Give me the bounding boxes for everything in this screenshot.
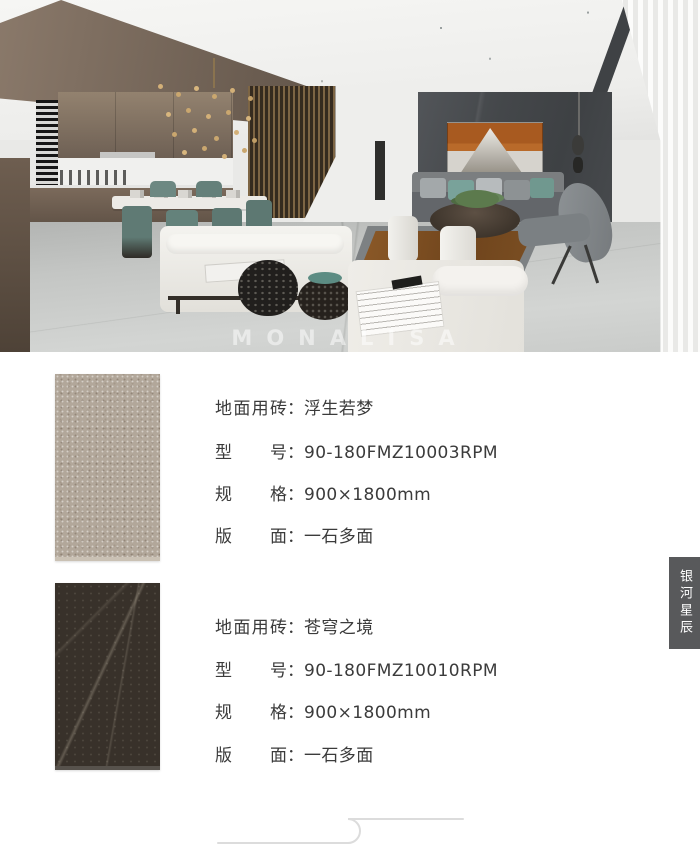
kitchen-upper-cabinets <box>58 92 233 158</box>
spec-colon: ： <box>287 698 304 723</box>
tableware <box>130 190 240 198</box>
spec-value: 浮生若梦 <box>304 399 374 419</box>
door <box>375 141 385 200</box>
textured-pot <box>298 278 352 320</box>
spec-label: 规格 <box>215 480 287 505</box>
tile-swatch-beige <box>55 374 160 561</box>
catalog-page: MONALISA 地面用砖：浮生若梦 型号：90-180FMZ10003RPM … <box>0 0 700 854</box>
spec-label: 地面用砖 <box>215 613 287 638</box>
spec-value: 90-180FMZ10010RPM <box>304 661 498 681</box>
spec-colon: ： <box>287 394 304 419</box>
spec-colon: ： <box>287 438 304 463</box>
spec-label: 型号 <box>215 656 287 681</box>
teal-bowl <box>308 272 342 284</box>
brand-watermark: MONALISA <box>0 326 700 350</box>
bench-leg <box>176 300 180 314</box>
sofa-pillow <box>420 178 446 198</box>
spec-colon: ： <box>287 741 304 766</box>
spec-label: 型号 <box>215 438 287 463</box>
room-photo: MONALISA <box>0 0 700 352</box>
chandelier-rod <box>213 58 215 88</box>
spec-value: 一石多面 <box>304 746 374 766</box>
textured-pot <box>238 260 298 316</box>
spec-value: 900×1800mm <box>304 485 431 505</box>
spec-row-usage: 地面用砖：浮生若梦 <box>215 394 374 419</box>
spec-label: 版面 <box>215 522 287 547</box>
spec-value: 一石多面 <box>304 527 374 547</box>
sofa-pillow <box>530 178 554 198</box>
spec-row-model: 型号：90-180FMZ10010RPM <box>215 656 498 681</box>
gold-chandelier <box>158 84 163 89</box>
spec-row-model: 型号：90-180FMZ10003RPM <box>215 438 498 463</box>
wood-pillar <box>0 158 30 352</box>
spec-label: 规格 <box>215 698 287 723</box>
pendant-lamp <box>572 135 584 155</box>
spec-colon: ： <box>287 613 304 638</box>
dining-chair <box>150 181 176 197</box>
spec-colon: ： <box>287 480 304 505</box>
dining-chair <box>196 181 222 197</box>
spec-row-size: 规格：900×1800mm <box>215 698 431 723</box>
sofa-pillow <box>504 180 530 200</box>
pendant-cord <box>578 92 580 137</box>
chaise-cushion <box>432 266 528 296</box>
tile-swatch-dark <box>55 583 160 770</box>
spec-row-faces: 版面：一石多面 <box>215 741 374 766</box>
spec-value: 900×1800mm <box>304 703 431 723</box>
side-tab-galaxy-stars[interactable]: 银河星辰 <box>669 557 700 649</box>
spec-colon: ： <box>287 656 304 681</box>
spec-row-faces: 版面：一石多面 <box>215 522 374 547</box>
spec-label: 地面用砖 <box>215 394 287 419</box>
spec-value: 90-180FMZ10003RPM <box>304 443 498 463</box>
white-stool <box>388 216 418 262</box>
spec-label: 版面 <box>215 741 287 766</box>
dining-chair <box>122 206 152 258</box>
counter-items <box>60 170 130 185</box>
table-plant <box>455 190 499 208</box>
spec-colon: ： <box>287 522 304 547</box>
spec-row-usage: 地面用砖：苍穹之境 <box>215 613 374 638</box>
bench-cushion <box>166 234 344 254</box>
spec-row-size: 规格：900×1800mm <box>215 480 431 505</box>
pendant-lamp <box>573 157 583 173</box>
spec-value: 苍穹之境 <box>304 618 374 638</box>
